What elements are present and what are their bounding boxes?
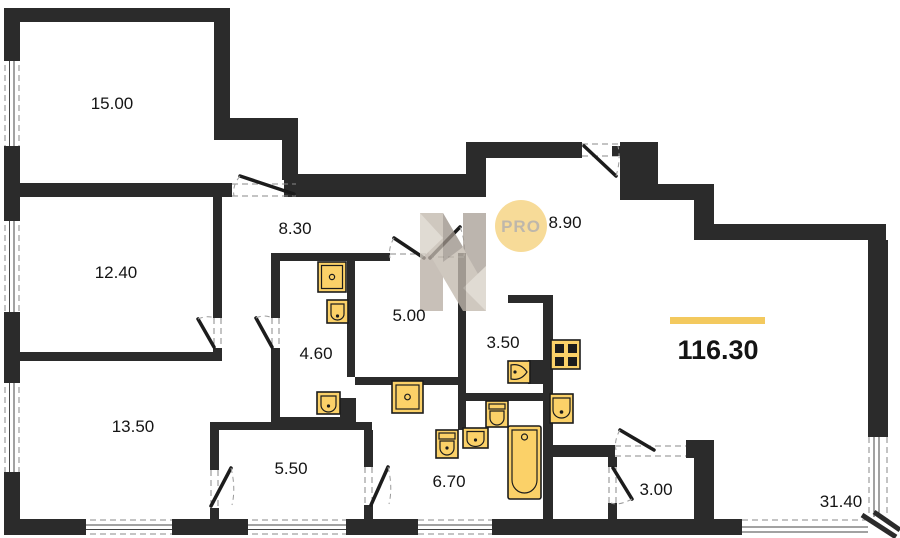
window [4, 55, 20, 152]
accent-bar [670, 317, 765, 324]
door-room-4-60 [256, 316, 279, 348]
door-room-3-00-top [615, 430, 686, 456]
watermark: PRO [420, 200, 547, 311]
door-room-5-50-right [365, 467, 391, 505]
room-label-3-50: 3.50 [486, 333, 519, 352]
room-label-5-00: 5.00 [392, 306, 425, 325]
room-label-15-00: 15.00 [91, 94, 134, 113]
bathtub-icon [508, 426, 541, 499]
room-label-4-60: 4.60 [299, 344, 332, 363]
sink-icon [327, 300, 348, 323]
room-label-5-50: 5.50 [274, 459, 307, 478]
sink-icon [463, 428, 488, 448]
door-room-3-00-left [609, 467, 632, 504]
washing-machine-icon [318, 262, 346, 292]
room-label-8-30: 8.30 [278, 219, 311, 238]
room-label-12-40: 12.40 [95, 263, 138, 282]
window [869, 437, 887, 517]
window [4, 215, 20, 318]
toilet-icon [436, 430, 458, 458]
door-room-5-50-left [211, 468, 234, 508]
window-band [742, 512, 900, 537]
room-label-8-90: 8.90 [548, 213, 581, 232]
room-label-3-00: 3.00 [639, 480, 672, 499]
n-logo-icon [420, 213, 486, 311]
window [242, 519, 352, 535]
door-entrance [582, 144, 621, 176]
window [418, 520, 492, 534]
kitchen-sink-icon [550, 394, 573, 423]
floor-plan-canvas: PRO 15.00 12.40 8.30 8.90 5.00 4.60 3.50… [0, 0, 900, 538]
room-label-31-40: 31.40 [820, 492, 863, 511]
toilet-icon [486, 401, 508, 427]
total-area: 116.30 [670, 317, 765, 365]
window [80, 519, 178, 535]
washing-machine-icon [392, 381, 423, 413]
pro-badge-label: PRO [501, 217, 541, 236]
room-label-6-70: 6.70 [432, 472, 465, 491]
door-room-12-40 [198, 317, 221, 348]
sink-icon [508, 361, 530, 383]
window [4, 377, 20, 478]
floor-plan: PRO 15.00 12.40 8.30 8.90 5.00 4.60 3.50… [0, 0, 900, 538]
toilet-icon [317, 392, 340, 414]
room-label-13-50: 13.50 [112, 417, 155, 436]
total-area-value: 116.30 [677, 335, 758, 365]
windows [4, 55, 900, 537]
stove-icon [551, 340, 580, 369]
